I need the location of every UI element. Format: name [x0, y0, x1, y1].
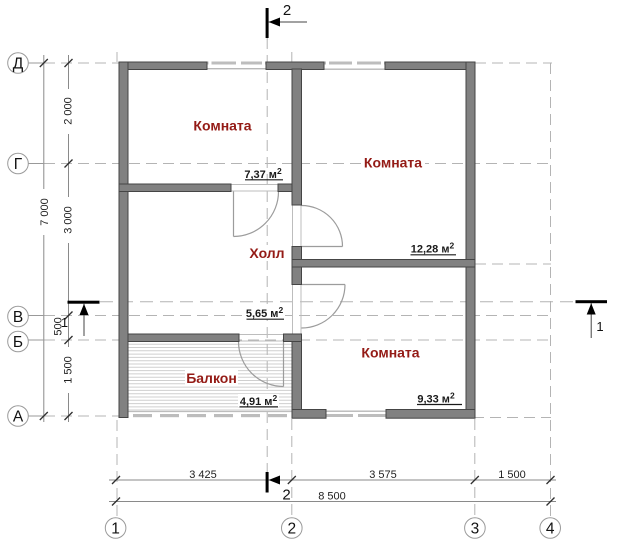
svg-text:1 500: 1 500	[498, 469, 526, 481]
svg-text:Комната: Комната	[361, 345, 419, 361]
svg-text:Д: Д	[13, 56, 24, 73]
svg-text:3 575: 3 575	[369, 469, 397, 481]
svg-text:1: 1	[61, 315, 68, 330]
svg-text:7,37 м2: 7,37 м2	[244, 166, 282, 181]
svg-text:Комната: Комната	[364, 155, 422, 171]
svg-text:2: 2	[287, 521, 296, 538]
svg-text:Г: Г	[14, 156, 23, 173]
svg-text:1: 1	[111, 521, 120, 538]
svg-text:12,28 м2: 12,28 м2	[411, 241, 455, 256]
svg-text:5,65 м2: 5,65 м2	[246, 305, 284, 320]
svg-text:3 425: 3 425	[189, 469, 217, 481]
svg-text:9,33 м2: 9,33 м2	[417, 391, 455, 406]
svg-text:Балкон: Балкон	[186, 370, 237, 386]
svg-text:3 000: 3 000	[63, 206, 75, 234]
svg-text:1 500: 1 500	[63, 356, 75, 384]
svg-text:2 000: 2 000	[63, 97, 75, 125]
svg-text:Б: Б	[13, 334, 23, 351]
svg-text:4: 4	[546, 521, 555, 538]
svg-text:Холл: Холл	[249, 245, 284, 261]
svg-text:Комната: Комната	[193, 118, 251, 134]
svg-text:3: 3	[471, 521, 480, 538]
svg-text:А: А	[13, 409, 24, 426]
svg-text:2: 2	[283, 2, 291, 19]
svg-text:В: В	[13, 309, 23, 326]
svg-text:8 500: 8 500	[318, 491, 346, 503]
svg-text:4,91 м2: 4,91 м2	[240, 393, 278, 408]
svg-text:1: 1	[596, 319, 603, 334]
svg-text:2: 2	[282, 487, 290, 504]
svg-text:7 000: 7 000	[39, 198, 51, 226]
